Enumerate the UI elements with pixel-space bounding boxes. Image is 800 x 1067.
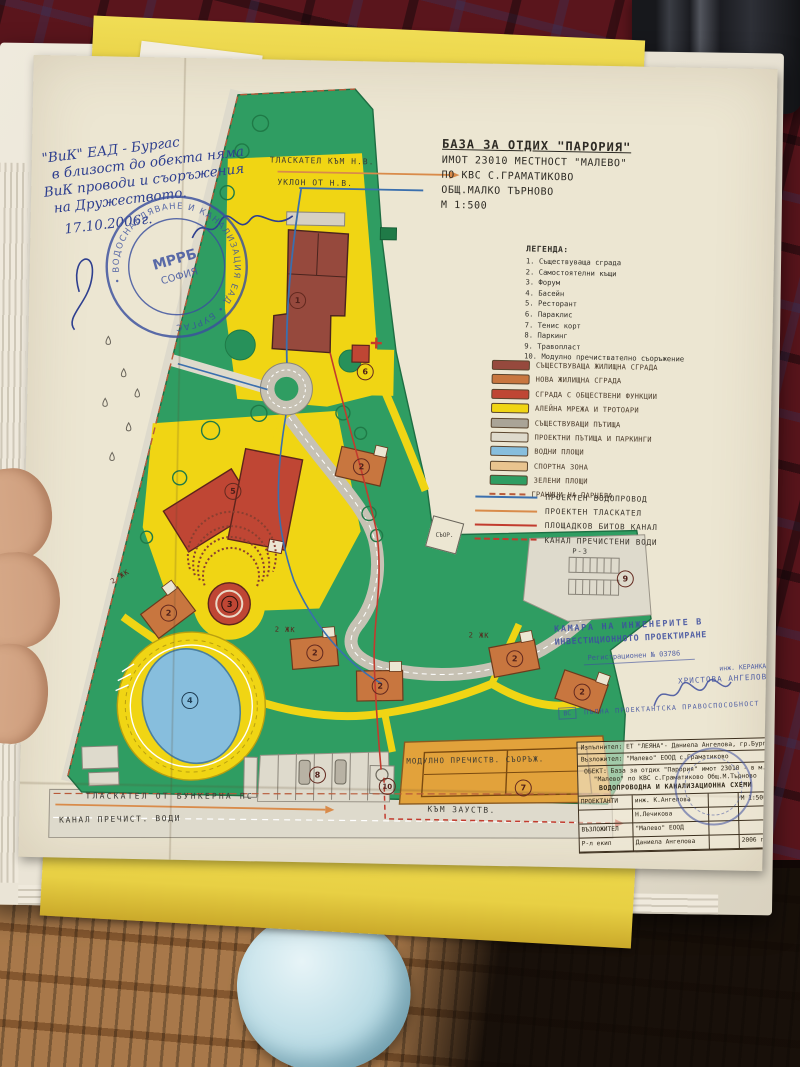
line-label: ПРОЕКТЕН ТЛАСКАТЕЛ [545, 507, 642, 518]
area-legend-row: АЛЕЙНА МРЕЖА И ТРОТОАРИ [491, 403, 657, 416]
structure-diamond-label: СЪОР. [436, 531, 454, 538]
label-parking-p3: Р-3 [572, 547, 588, 555]
label-pressure-ps: ТЛАСКАТЕЛ ОТ БУНКЕРНА ПС [86, 792, 254, 801]
finger [0, 642, 51, 747]
pen-flourish [72, 259, 93, 330]
area-label: ПРОЕКТНИ ПЪТИЩА И ПАРКИНГИ [534, 434, 652, 444]
line-swatch [475, 495, 537, 498]
area-legend-row: ЗЕЛЕНИ ПЛОЩИ [490, 475, 656, 488]
area-legend-row: НОВА ЖИЛИЩНА СГРАДА [492, 374, 658, 387]
area-legend-row: СПОРТНА ЗОНА [490, 461, 656, 474]
legend-heading: ЛЕГЕНДА: [526, 244, 686, 256]
area-color-legend: СЪЩЕСТВУВАЩА ЖИЛИЩНА СГРАДА НОВА ЖИЛИЩНА… [489, 360, 658, 505]
line-swatch-dashed [475, 538, 537, 541]
table-key [579, 809, 633, 824]
area-label: СГРАДА С ОБЩЕСТВЕНИ ФУНКЦИИ [535, 390, 657, 400]
color-swatch [491, 417, 529, 428]
area-label: НОВА ЖИЛИЩНА СГРАДА [536, 376, 622, 386]
table-key: ПРОЕКТАНТИ [579, 795, 633, 810]
house-type-label: 2 ЖК [275, 626, 296, 634]
color-swatch [490, 432, 528, 443]
table-value: Даниела Ангелова [634, 836, 710, 852]
area-legend-row: ПРОЕКТНИ ПЪТИЩА И ПАРКИНГИ [490, 432, 656, 445]
area-label: СЪЩЕСТВУВАЩА ЖИЛИЩНА СГРАДА [536, 362, 658, 372]
title-line: ПО КВС С.ГРАМАТИКОВО [441, 170, 630, 185]
line-label: ПЛОЩАДКОВ БИТОВ КАНАЛ [545, 521, 658, 532]
area-legend-row: ВОДНИ ПЛОЩИ [490, 446, 656, 459]
area-legend-row: СЪЩЕСТВУВАЩА ЖИЛИЩНА СГРАДА [492, 360, 658, 373]
label-gravity-main: УКЛОН ОТ Н.В. [277, 178, 353, 188]
line-legend-row: КАНАЛ ПРЕЧИСТЕНИ ВОДИ [474, 534, 657, 547]
line-legend-row: ПЛОЩАДКОВ БИТОВ КАНАЛ [475, 520, 658, 533]
label-to-discharge: КЪМ ЗАУСТВ. [427, 805, 496, 815]
tree-large [225, 330, 256, 361]
table-key: Р-л екип [580, 837, 634, 852]
site-plan-sheet: "ВиК" ЕАД - Бургас в близост до обекта н… [18, 55, 777, 871]
color-swatch [490, 446, 528, 457]
area-legend-row: СЪЩЕСТВУВАЩИ ПЪТИЩА [491, 417, 657, 430]
stamp-registration: Регистрационен № 03786 [583, 649, 694, 666]
line-label: ПРОЕКТЕН ВОДОПРОВОД [545, 493, 647, 504]
line-swatch [475, 509, 537, 512]
table-key: ВЪЗЛОЖИТЕЛ [579, 823, 633, 838]
house-type-label: 2 ЖК [469, 631, 490, 639]
color-swatch [491, 389, 529, 400]
color-swatch [492, 360, 530, 371]
engineer-chamber-stamp: КАМАРА НА ИНЖЕНЕРИТЕ В ИНВЕСТИЦИОННОТО П… [554, 614, 778, 720]
area-legend-row: СГРАДА С ОБЩЕСТВЕНИ ФУНКЦИИ [491, 389, 657, 402]
color-swatch [490, 475, 528, 486]
drawing-title: БАЗА ЗА ОТДИХ "ПАРОРИЯ" [442, 137, 631, 155]
color-swatch [490, 461, 528, 472]
area-label: СПОРТНА ЗОНА [534, 462, 588, 471]
stamp-signature [647, 672, 739, 717]
hand [0, 468, 70, 756]
stamp-abbr: ВС [558, 707, 576, 720]
drawing-title-block: БАЗА ЗА ОТДИХ "ПАРОРИЯ" ИМОТ 23010 МЕСТН… [441, 137, 632, 215]
numbered-legend: ЛЕГЕНДА: 1. Съществуваща сграда 2. Самос… [524, 244, 686, 365]
area-label: ЗЕЛЕНИ ПЛОЩИ [534, 477, 588, 486]
area-label: ВОДНИ ПЛОЩИ [534, 448, 584, 457]
area-label: СЪЩЕСТВУВАЩИ ПЪТИЩА [535, 419, 621, 429]
line-label: КАНАЛ ПРЕЧИСТЕНИ ВОДИ [544, 535, 657, 546]
color-swatch [491, 403, 529, 414]
photo-of-site-plan: "ВиК" ЕАД - Бургас в близост до обекта н… [0, 0, 800, 1067]
line-type-legend: ПРОЕКТЕН ВОДОПРОВОД ПРОЕКТЕН ТЛАСКАТЕЛ П… [474, 491, 658, 551]
color-swatch [492, 374, 530, 385]
line-legend-row: ПРОЕКТЕН ТЛАСКАТЕЛ [475, 506, 658, 519]
label-treated-channel: КАНАЛ ПРЕЧИСТ. ВОДИ [59, 814, 181, 825]
line-swatch [475, 523, 537, 526]
finger [0, 464, 57, 563]
title-block-table: Изпълнител: ЕТ "ЛЕЯНА"- Даниела Ангелова… [576, 737, 774, 853]
finger [0, 550, 62, 650]
area-label: АЛЕЙНА МРЕЖА И ТРОТОАРИ [535, 405, 639, 415]
title-line: ИМОТ 23010 МЕСТНОСТ "МАЛЕВО" [442, 155, 631, 170]
roundabout [260, 362, 313, 415]
title-line: ОБЩ.МАЛКО ТЪРНОВО [441, 185, 630, 200]
table-cell [710, 835, 740, 850]
